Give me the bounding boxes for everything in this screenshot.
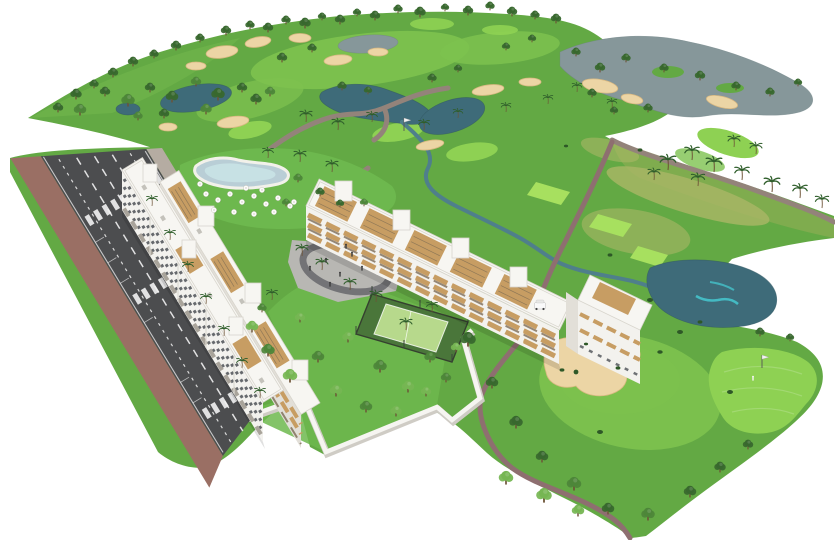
bunker [186, 62, 206, 70]
bush-icon [616, 366, 621, 369]
bunker [289, 34, 311, 43]
bush-icon [584, 343, 588, 346]
palm-tree-icon [735, 166, 749, 180]
bush-icon [597, 430, 603, 434]
bush-icon [677, 330, 683, 334]
golf-cart-icon [535, 300, 546, 310]
bunker [159, 123, 177, 131]
tree-icon [499, 471, 514, 485]
stair-tower [229, 317, 243, 335]
bush-icon [574, 370, 579, 375]
bush-icon [608, 253, 613, 256]
penthouse [335, 181, 352, 201]
render-stage [0, 0, 835, 540]
tower-side [566, 292, 578, 354]
green-strip-top [410, 18, 454, 30]
bush-icon [657, 350, 662, 354]
stair-tower [182, 240, 196, 258]
palm-tree-icon [793, 184, 807, 198]
bush-icon [560, 368, 565, 371]
tree-icon [441, 3, 449, 11]
bush-icon [647, 298, 653, 302]
bush-icon [564, 145, 568, 148]
bush-icon [698, 320, 703, 323]
palm-tree-icon [815, 195, 828, 208]
bush-icon [727, 390, 733, 394]
aerial-render [0, 0, 835, 540]
stair-tower [143, 164, 157, 182]
tree-icon [485, 2, 494, 11]
penthouse [510, 267, 527, 287]
palm-tree-icon [764, 176, 780, 192]
tree-icon [393, 5, 402, 14]
stair-tower [245, 283, 261, 303]
bunker [519, 78, 541, 86]
tree-icon [245, 21, 254, 30]
penthouse [452, 238, 469, 258]
bunker [368, 48, 388, 56]
bush-icon [638, 148, 643, 151]
penthouse [393, 210, 410, 230]
green-strip-top2 [482, 25, 518, 35]
